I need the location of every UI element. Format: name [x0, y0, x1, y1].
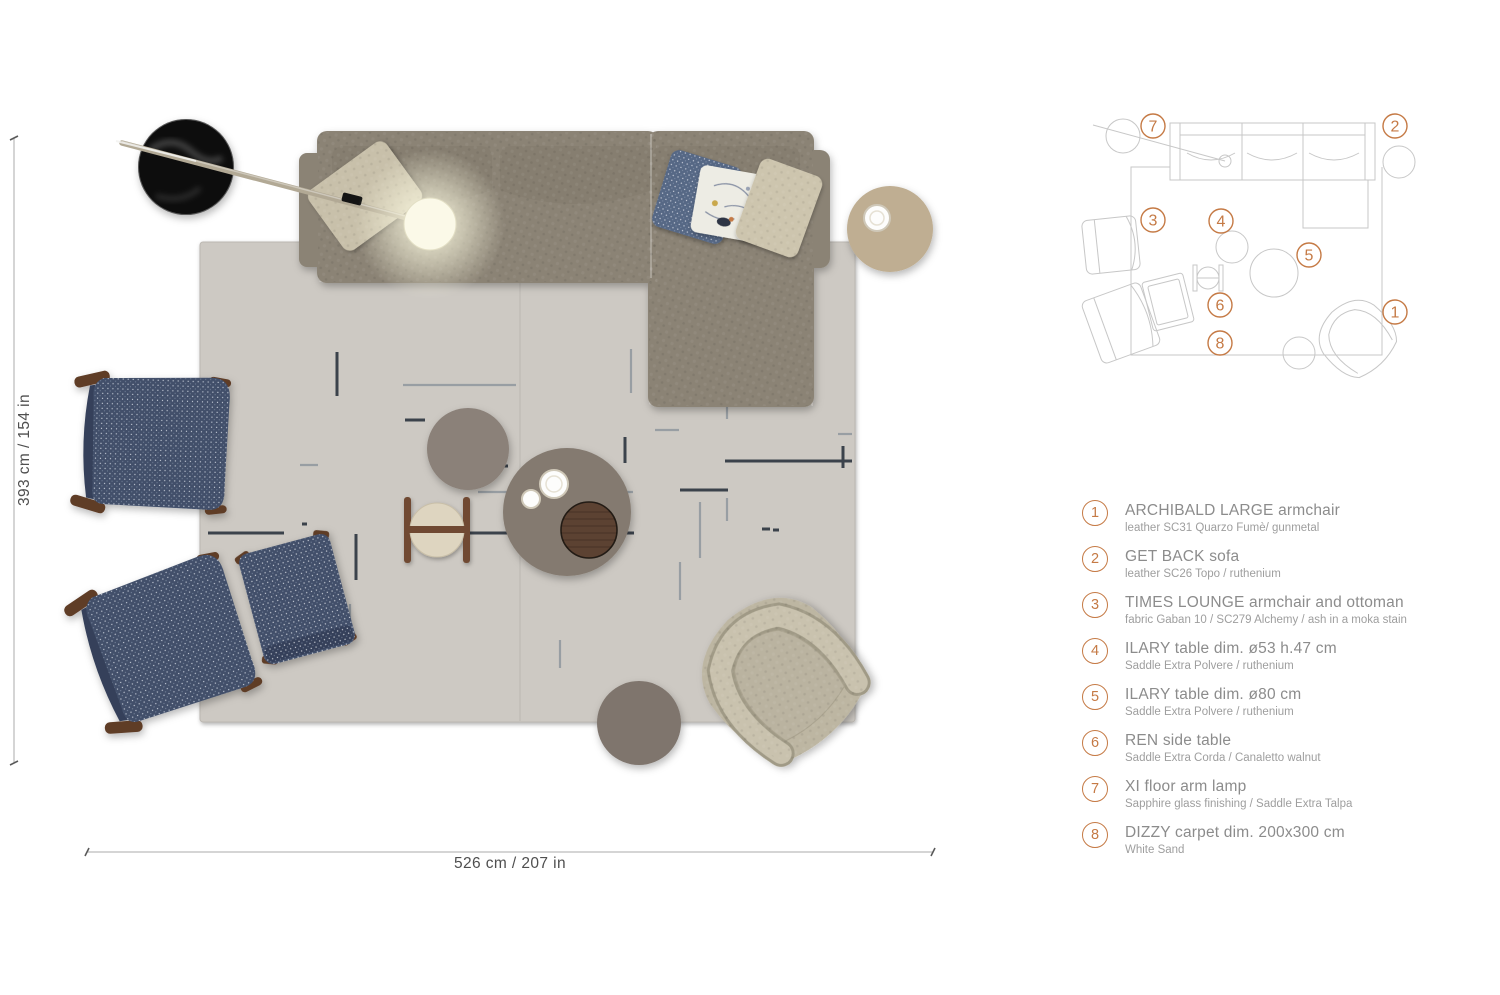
- callout-4: 4: [1209, 209, 1233, 233]
- callout-2: 2: [1383, 114, 1407, 138]
- legend-item-subtitle: Saddle Extra Polvere / ruthenium: [1125, 705, 1301, 719]
- legend-item-4: 4 ILARY table dim. ø53 h.47 cm Saddle Ex…: [1082, 640, 1492, 673]
- svg-text:6: 6: [1216, 298, 1225, 315]
- legend-item-subtitle: White Sand: [1125, 843, 1345, 857]
- svg-text:2: 2: [1391, 119, 1400, 136]
- legend-item-title: GET BACK sofa: [1125, 548, 1281, 566]
- legend-item-7: 7 XI floor arm lamp Sapphire glass finis…: [1082, 778, 1492, 811]
- legend-item-title: DIZZY carpet dim. 200x300 cm: [1125, 824, 1345, 842]
- times-lounge-armchair-1: [69, 368, 232, 518]
- svg-text:5: 5: [1305, 248, 1314, 265]
- legend-item-subtitle: leather SC26 Topo / ruthenium: [1125, 567, 1281, 581]
- callout-1: 1: [1383, 300, 1407, 324]
- legend-item-subtitle: leather SC31 Quarzo Fumè/ gunmetal: [1125, 521, 1340, 535]
- callout-6: 6: [1208, 293, 1232, 317]
- legend-item-subtitle: Sapphire glass finishing / Saddle Extra …: [1125, 797, 1352, 811]
- legend-number-badge: 1: [1082, 500, 1108, 526]
- legend-item-title: XI floor arm lamp: [1125, 778, 1352, 796]
- minimap-callouts: 1 2 3 4 5 6 7 8: [1141, 114, 1407, 355]
- legend-item-6: 6 REN side table Saddle Extra Corda / Ca…: [1082, 732, 1492, 765]
- callout-8: 8: [1208, 331, 1232, 355]
- legend-number-badge: 8: [1082, 822, 1108, 848]
- ilary-table-53: [427, 408, 509, 490]
- callout-5: 5: [1297, 243, 1321, 267]
- svg-text:4: 4: [1217, 214, 1226, 231]
- round-table-right: [847, 186, 933, 272]
- legend-item-subtitle: Saddle Extra Corda / Canaletto walnut: [1125, 751, 1321, 765]
- rendered-floor-plan: 393 cm / 154 in 526 cm / 207 in: [0, 0, 960, 995]
- callout-3: 3: [1141, 208, 1165, 232]
- legend-item-5: 5 ILARY table dim. ø80 cm Saddle Extra P…: [1082, 686, 1492, 719]
- svg-text:1: 1: [1391, 305, 1400, 322]
- legend-item-1: 1 ARCHIBALD LARGE armchair leather SC31 …: [1082, 502, 1492, 535]
- legend-number-badge: 3: [1082, 592, 1108, 618]
- vertical-dimension-label: 393 cm / 154 in: [16, 394, 33, 506]
- minimap-room-outline: [1081, 119, 1415, 388]
- legend-item-title: ILARY table dim. ø53 h.47 cm: [1125, 640, 1337, 658]
- legend-item-title: ARCHIBALD LARGE armchair: [1125, 502, 1340, 520]
- callout-7: 7: [1141, 114, 1165, 138]
- legend: 1 ARCHIBALD LARGE armchair leather SC31 …: [1082, 502, 1492, 870]
- legend-number-badge: 2: [1082, 546, 1108, 572]
- legend-item-3: 3 TIMES LOUNGE armchair and ottoman fabr…: [1082, 594, 1492, 627]
- legend-item-title: TIMES LOUNGE armchair and ottoman: [1125, 594, 1407, 612]
- legend-number-badge: 6: [1082, 730, 1108, 756]
- legend-item-subtitle: fabric Gaban 10 / SC279 Alchemy / ash in…: [1125, 613, 1407, 627]
- furniture-plan-page: 393 cm / 154 in 526 cm / 207 in: [0, 0, 1500, 995]
- legend-item-title: REN side table: [1125, 732, 1321, 750]
- legend-item-title: ILARY table dim. ø80 cm: [1125, 686, 1301, 704]
- legend-number-badge: 7: [1082, 776, 1108, 802]
- svg-text:3: 3: [1149, 213, 1158, 230]
- svg-text:7: 7: [1149, 119, 1158, 136]
- legend-item-subtitle: Saddle Extra Polvere / ruthenium: [1125, 659, 1337, 673]
- round-table-bottom: [597, 681, 681, 765]
- legend-number-badge: 4: [1082, 638, 1108, 664]
- wood-tray: [561, 502, 617, 558]
- horizontal-dimension-label: 526 cm / 207 in: [454, 855, 566, 872]
- schematic-floor-plan: 1 2 3 4 5 6 7 8: [1075, 95, 1495, 395]
- legend-item-8: 8 DIZZY carpet dim. 200x300 cm White San…: [1082, 824, 1492, 857]
- ilary-table-80: [503, 448, 631, 576]
- lamp-light: [404, 198, 456, 250]
- legend-number-badge: 5: [1082, 684, 1108, 710]
- legend-item-2: 2 GET BACK sofa leather SC26 Topo / ruth…: [1082, 548, 1492, 581]
- svg-text:8: 8: [1216, 336, 1225, 353]
